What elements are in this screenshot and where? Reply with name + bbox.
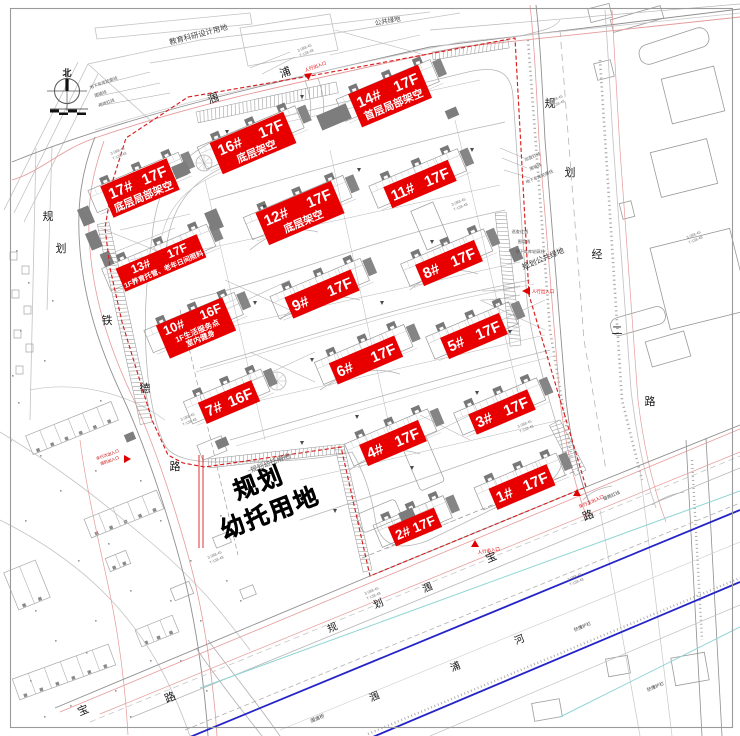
svg-text:规: 规 (43, 209, 54, 223)
svg-text:巡查红线: 巡查红线 (512, 228, 530, 235)
svg-text:河: 河 (512, 632, 526, 647)
svg-text:德: 德 (140, 381, 151, 395)
svg-text:教育科研设计用地: 教育科研设计用地 (168, 21, 229, 46)
svg-text:道路红线: 道路红线 (602, 489, 622, 503)
svg-text:人行出入口: 人行出入口 (532, 288, 555, 295)
svg-text:用地红线: 用地红线 (97, 96, 116, 109)
svg-text:划: 划 (56, 242, 67, 255)
svg-text:浦: 浦 (278, 64, 293, 80)
svg-text:经: 经 (592, 248, 603, 261)
svg-text:地下车库轮廓线: 地下车库轮廓线 (515, 248, 545, 255)
svg-text:车行主出入口: 车行主出入口 (578, 493, 606, 510)
svg-text:北: 北 (62, 67, 71, 78)
svg-text:巡查红线: 巡查红线 (523, 150, 542, 163)
svg-text:路: 路 (645, 395, 656, 408)
svg-text:防撞护栏: 防撞护栏 (573, 620, 593, 634)
svg-text:路: 路 (170, 460, 181, 473)
svg-text:二: 二 (612, 325, 623, 337)
svg-text:涠浦桥: 涠浦桥 (309, 712, 326, 724)
svg-text:围墙线: 围墙线 (93, 88, 108, 99)
svg-text:围墙线: 围墙线 (518, 238, 531, 245)
svg-text:涠: 涠 (367, 689, 381, 704)
svg-text:路: 路 (581, 507, 596, 523)
svg-text:防撞护栏: 防撞护栏 (646, 680, 666, 694)
svg-text:宝: 宝 (75, 701, 91, 718)
svg-text:涠: 涠 (420, 580, 434, 595)
svg-text:公共绿地: 公共绿地 (374, 14, 402, 27)
svg-text:浦: 浦 (448, 659, 462, 675)
svg-text:铁: 铁 (102, 314, 113, 327)
svg-text:划: 划 (565, 166, 576, 179)
svg-text:路: 路 (163, 689, 178, 705)
